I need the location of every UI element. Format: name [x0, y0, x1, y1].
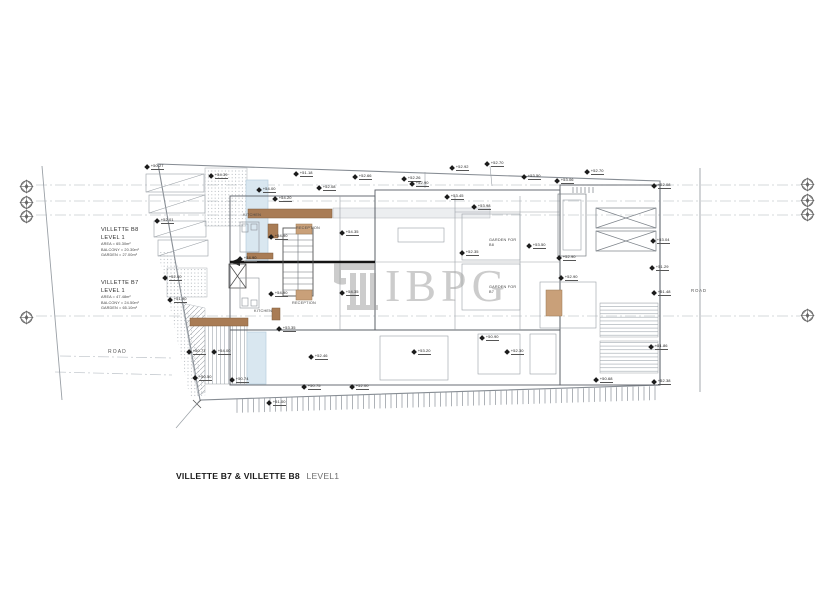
room-label: RECEPTION: [292, 301, 316, 306]
elevation-marker: +50.77: [187, 349, 206, 355]
elevation-value: +51.86: [655, 344, 668, 350]
diamond-icon: [650, 238, 656, 244]
diamond-icon: [211, 349, 217, 355]
elevation-marker: +51.18: [294, 171, 313, 177]
elevation-value: +53.35: [283, 326, 296, 332]
elevation-marker: +54.90: [238, 256, 257, 262]
elevation-value: +52.01: [161, 218, 174, 224]
elevation-marker: +52.01: [155, 218, 174, 224]
elevation-marker: +54.35: [340, 290, 359, 296]
elevation-value: +53.50: [528, 174, 541, 180]
diamond-icon: [349, 384, 355, 390]
benchmark-symbol: [19, 310, 34, 325]
elevation-marker: +51.00: [267, 400, 286, 406]
elevation-value: +50.68: [600, 377, 613, 383]
room-label-line1: KITCHEN: [243, 213, 261, 218]
diamond-icon: [268, 234, 274, 240]
elevation-marker: +53.98: [472, 204, 491, 210]
diamond-icon: [308, 354, 314, 360]
benchmark-symbol: [19, 209, 34, 224]
room-label-line1: RECEPTION: [292, 301, 316, 306]
elevation-value: +53.45: [451, 194, 464, 200]
diamond-icon: [268, 291, 274, 297]
elevation-marker: +54.39: [209, 173, 228, 179]
elevation-value: +53.06: [561, 178, 574, 184]
elevation-marker: +51.86: [649, 344, 668, 350]
elevation-value: +50.75: [308, 384, 321, 390]
road-label-right: ROAD: [691, 288, 707, 293]
elevation-value: +54.90: [275, 291, 288, 297]
elevation-value: +50.27: [151, 164, 164, 170]
diamond-icon: [301, 384, 307, 390]
diamond-icon: [521, 174, 527, 180]
elevation-marker: +53.45: [445, 194, 464, 200]
room-label-line1: KITCHEN: [254, 309, 272, 314]
elevation-value: +51.29: [656, 265, 669, 271]
sheet-title-level: LEVEL1: [306, 471, 339, 481]
elevation-value: +54.35: [346, 230, 359, 236]
diamond-icon: [471, 204, 477, 210]
elevation-value: +52.08: [323, 185, 336, 191]
benchmark-symbol: [800, 193, 815, 208]
elevation-value: +53.50: [533, 243, 546, 249]
diamond-icon: [648, 344, 654, 350]
diamond-icon: [186, 349, 192, 355]
road-label-left: ROAD: [108, 349, 127, 355]
elevation-value: +50.77: [193, 349, 206, 355]
room-label-line1: RECEPTION: [296, 226, 320, 231]
elevation-marker: +53.20: [412, 349, 431, 355]
room-label-line1: GARDEN FOR: [489, 285, 516, 290]
diamond-icon: [484, 161, 490, 167]
elevation-marker: +53.35: [277, 326, 296, 332]
elevation-value: +51.00: [273, 400, 286, 406]
room-label: GARDEN FOR B7: [489, 285, 516, 294]
elevation-marker: +52.38: [652, 379, 671, 385]
diamond-icon: [272, 196, 278, 202]
unit-b8-label: VILLETTE B8 LEVEL 1 AREA = 65.30m² BALCO…: [101, 227, 139, 259]
diamond-icon: [651, 379, 657, 385]
elevation-value: +54.90: [275, 234, 288, 240]
elevation-marker: +52.35: [460, 250, 479, 256]
elevation-marker: +50.90: [480, 335, 499, 341]
elevation-marker: +54.90: [269, 291, 288, 297]
diamond-icon: [504, 349, 510, 355]
room-label-line2: B8: [489, 243, 516, 248]
benchmark-symbol: [800, 207, 815, 222]
elevation-marker: +51.48: [652, 290, 671, 296]
elevation-value: +54.00: [218, 349, 231, 355]
sheet-title: VILLETTE B7 & VILLETTE B8 LEVEL1: [176, 471, 339, 481]
elevation-marker: +50.68: [594, 377, 613, 383]
elevation-value: +54.39: [215, 173, 228, 179]
elevation-marker: +52.92: [450, 165, 469, 171]
elevation-marker: +54.00: [257, 187, 276, 193]
diamond-icon: [651, 183, 657, 189]
elevation-marker: +51.29: [650, 265, 669, 271]
unit-b7-label: VILLETTE B7 LEVEL 1 AREA = 47.48m² BALCO…: [101, 280, 139, 312]
elevation-value: +50.50: [199, 375, 212, 381]
diamond-icon: [256, 187, 262, 193]
unit-level: LEVEL 1: [101, 235, 139, 243]
diamond-icon: [649, 265, 655, 271]
diamond-icon: [409, 181, 415, 187]
elevation-value: +52.00: [169, 275, 182, 281]
unit-level: LEVEL 1: [101, 288, 139, 296]
elevation-marker: +54.35: [340, 230, 359, 236]
elevation-value: +51.90: [174, 297, 187, 303]
benchmark-symbol: [800, 308, 815, 323]
diamond-icon: [237, 256, 243, 262]
room-label: GARDEN FOR B8: [489, 238, 516, 247]
elevation-marker: +52.46: [309, 354, 328, 360]
elevation-marker: +50.74: [230, 377, 249, 383]
elevation-marker: +54.00: [212, 349, 231, 355]
diamond-icon: [584, 169, 590, 175]
elevation-value: +52.90: [565, 275, 578, 281]
elevation-marker: +50.50: [193, 375, 212, 381]
diamond-icon: [339, 230, 345, 236]
elevation-marker: +52.08: [317, 185, 336, 191]
diamond-icon: [167, 297, 173, 303]
diamond-icon: [276, 326, 282, 332]
benchmark-symbol: [19, 195, 34, 210]
unit-garden: GARDEN = 65.10m²: [101, 306, 139, 312]
elevation-marker: +52.08: [652, 183, 671, 189]
elevation-marker: +50.27: [145, 164, 164, 170]
diamond-icon: [352, 174, 358, 180]
elevation-marker: +54.20: [273, 196, 292, 202]
elevation-value: +52.70: [491, 161, 504, 167]
elevation-value: +52.08: [658, 183, 671, 189]
elevation-marker: +52.90: [557, 255, 576, 261]
elevation-value: +52.35: [466, 250, 479, 256]
elevation-value: +54.90: [244, 256, 257, 262]
diamond-icon: [411, 349, 417, 355]
elevation-marker: +52.90: [410, 181, 429, 187]
diamond-icon: [459, 250, 465, 256]
unit-garden: GARDEN = 27.00m²: [101, 253, 139, 259]
elevation-marker: +52.66: [353, 174, 372, 180]
diamond-icon: [556, 255, 562, 261]
room-label-line2: B7: [489, 290, 516, 295]
diamond-icon: [266, 400, 272, 406]
benchmark-symbol: [19, 179, 34, 194]
elevation-value: +53.20: [418, 349, 431, 355]
elevation-value: +52.90: [416, 181, 429, 187]
elevation-marker: +52.00: [350, 384, 369, 390]
elevation-value: +53.98: [478, 204, 491, 210]
sheet-title-project: VILLETTE B7 & VILLETTE B8: [176, 471, 300, 481]
elevation-marker: +50.75: [302, 384, 321, 390]
elevation-value: +50.74: [236, 377, 249, 383]
diamond-icon: [229, 377, 235, 383]
elevation-value: +52.46: [315, 354, 328, 360]
room-label: KITCHEN: [243, 213, 261, 218]
diamond-icon: [554, 178, 560, 184]
elevation-value: +51.18: [300, 171, 313, 177]
floor-plan-sheet: IBPG VILLETTE B8 LEVEL 1 AREA = 65.30m² …: [0, 0, 838, 592]
elevation-value: +51.48: [658, 290, 671, 296]
room-label-line1: GARDEN FOR: [489, 238, 516, 243]
diamond-icon: [154, 218, 160, 224]
elevation-value: +52.00: [356, 384, 369, 390]
diamond-icon: [293, 171, 299, 177]
elevation-value: +52.92: [456, 165, 469, 171]
diamond-icon: [444, 194, 450, 200]
diamond-icon: [144, 164, 150, 170]
elevation-marker: +54.90: [269, 234, 288, 240]
elevation-value: +52.70: [591, 169, 604, 175]
diamond-icon: [479, 335, 485, 341]
elevation-value: +52.38: [658, 379, 671, 385]
elevation-value: +53.04: [657, 238, 670, 244]
diamond-icon: [162, 275, 168, 281]
benchmark-symbol: [800, 177, 815, 192]
elevation-marker: +52.90: [559, 275, 578, 281]
diamond-icon: [339, 290, 345, 296]
diamond-icon: [558, 275, 564, 281]
diamond-icon: [401, 176, 407, 182]
elevation-value: +54.35: [346, 290, 359, 296]
elevation-marker: +51.90: [168, 297, 187, 303]
elevation-value: +52.30: [511, 349, 524, 355]
room-label: RECEPTION: [296, 226, 320, 231]
elevation-value: +50.90: [486, 335, 499, 341]
room-label: KITCHEN: [254, 309, 272, 314]
elevation-value: +52.90: [563, 255, 576, 261]
elevation-marker: +52.70: [485, 161, 504, 167]
elevation-marker: +53.06: [555, 178, 574, 184]
diamond-icon: [526, 243, 532, 249]
annotations-layer: VILLETTE B8 LEVEL 1 AREA = 65.30m² BALCO…: [0, 0, 838, 592]
elevation-value: +52.66: [359, 174, 372, 180]
elevation-value: +54.00: [263, 187, 276, 193]
elevation-marker: +52.30: [505, 349, 524, 355]
elevation-marker: +53.50: [527, 243, 546, 249]
unit-name: VILLETTE B8: [101, 227, 139, 235]
diamond-icon: [593, 377, 599, 383]
diamond-icon: [651, 290, 657, 296]
elevation-value: +54.20: [279, 196, 292, 202]
elevation-marker: +53.50: [522, 174, 541, 180]
diamond-icon: [316, 185, 322, 191]
diamond-icon: [192, 375, 198, 381]
elevation-marker: +52.70: [585, 169, 604, 175]
diamond-icon: [449, 165, 455, 171]
elevation-marker: +52.00: [163, 275, 182, 281]
unit-name: VILLETTE B7: [101, 280, 139, 288]
diamond-icon: [208, 173, 214, 179]
elevation-marker: +53.04: [651, 238, 670, 244]
